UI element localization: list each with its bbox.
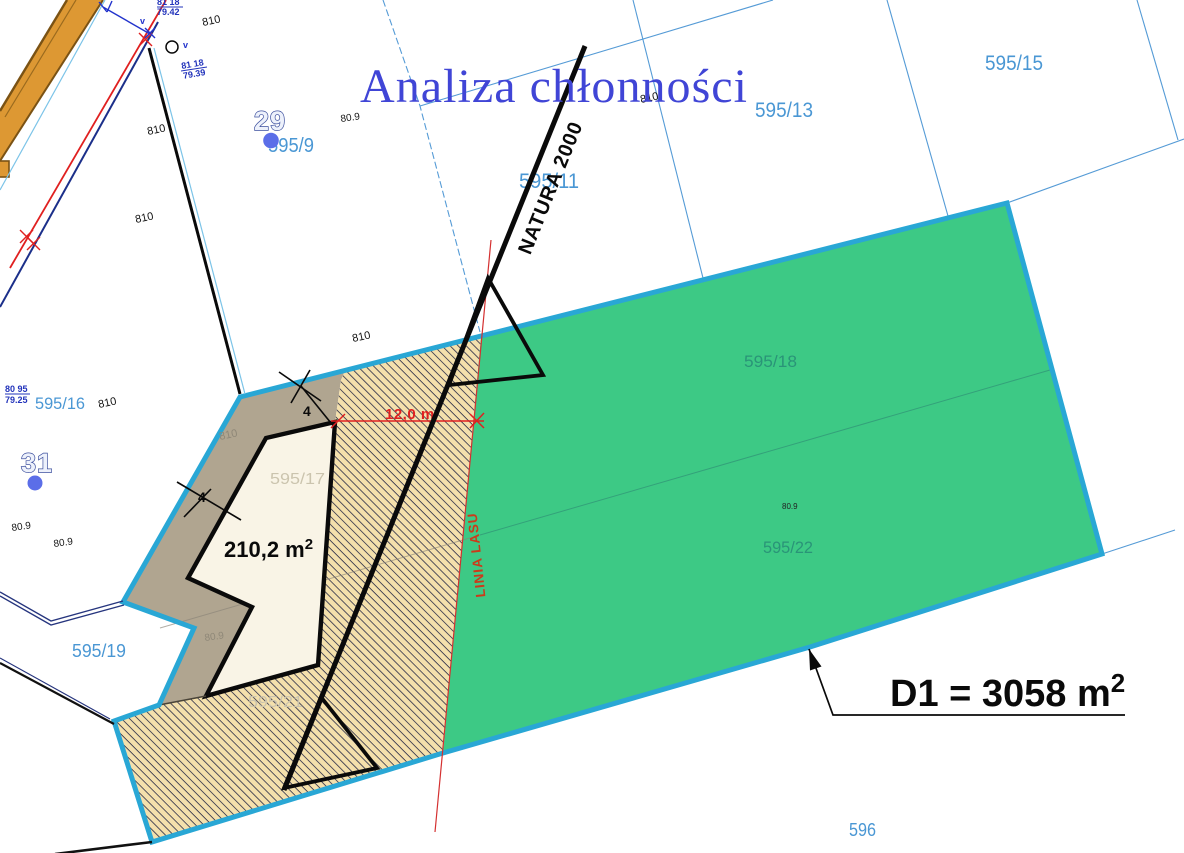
svg-text:79.25: 79.25 [5, 395, 28, 405]
svg-text:v: v [183, 40, 188, 50]
svg-text:D1 = 3058 m2: D1 = 3058 m2 [890, 668, 1125, 715]
svg-text:12,0 m: 12,0 m [385, 406, 435, 423]
svg-text:80.9: 80.9 [782, 502, 798, 511]
svg-text:v: v [140, 16, 145, 26]
svg-text:595/18: 595/18 [744, 352, 797, 371]
svg-text:80 95: 80 95 [5, 384, 28, 394]
svg-text:81 18: 81 18 [157, 0, 180, 7]
svg-text:596: 596 [849, 820, 876, 840]
svg-text:29: 29 [254, 106, 286, 136]
svg-text:595/19: 595/19 [72, 641, 126, 661]
svg-text:595/21: 595/21 [248, 694, 303, 711]
svg-text:4: 4 [303, 403, 311, 419]
svg-text:4: 4 [198, 489, 206, 505]
svg-text:595/13: 595/13 [755, 99, 813, 122]
svg-text:210,2 m2: 210,2 m2 [224, 536, 313, 562]
svg-text:595/22: 595/22 [763, 538, 813, 557]
svg-text:79.42: 79.42 [157, 7, 180, 17]
svg-text:31: 31 [21, 448, 53, 478]
svg-text:595/16: 595/16 [35, 394, 85, 413]
svg-text:Analiza chłonności: Analiza chłonności [360, 60, 747, 113]
svg-text:595/17: 595/17 [270, 471, 325, 488]
svg-text:595/15: 595/15 [985, 52, 1043, 75]
